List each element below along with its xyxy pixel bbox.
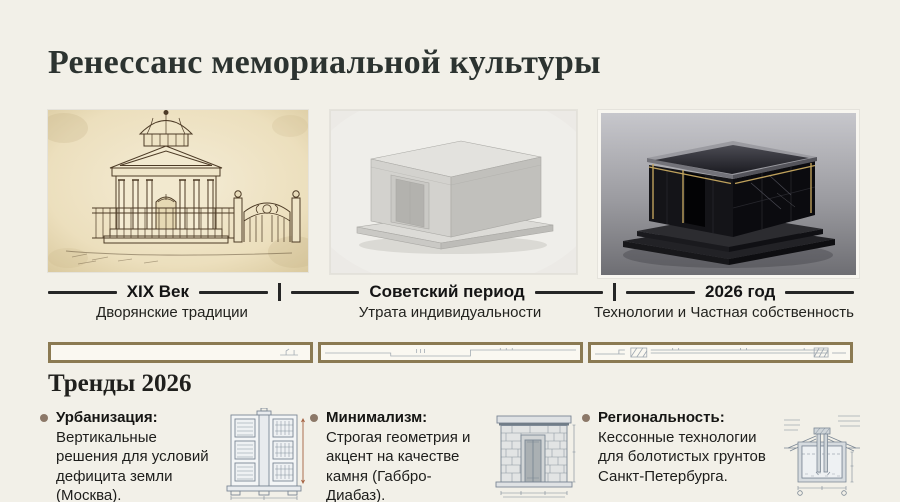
trend-label: Региональность:: [598, 409, 725, 426]
timeline: XIX Век Советский период 2026 год Дворян…: [48, 282, 854, 324]
trend-description: Вертикальные решения для условий дефицит…: [56, 429, 209, 502]
timeline-era-label-soviet: Советский период: [369, 282, 524, 302]
timeline-line-segment: [291, 291, 360, 294]
concrete-box-illustration: [331, 111, 576, 273]
bullet-icon: [40, 414, 48, 422]
trend-description: Строгая геометрия и акцент на качестве к…: [326, 429, 470, 502]
timeline-sublabels: Дворянские традиции Утрата индивидуально…: [48, 304, 854, 324]
era-image-xix-century: [48, 110, 308, 272]
timeline-line-segment: [785, 291, 854, 294]
band-segment: [48, 342, 313, 363]
timeline-era-label-xix: XIX Век: [127, 282, 189, 302]
band-segment: [588, 342, 853, 363]
timeline-line-segment: [626, 291, 695, 294]
trend-item-minimalism: Минимализм: Строгая геометрия и акцент н…: [310, 408, 578, 502]
section-drawing-lines: [591, 345, 850, 360]
timeline-tick: [613, 283, 616, 301]
columbarium-elevation-icon: [220, 408, 308, 500]
infographic-canvas: Ренессанс мемориальной культуры: [0, 0, 900, 502]
trend-text: Минимализм: Строгая геометрия и акцент н…: [326, 408, 486, 502]
trend-text: Региональность: Кессонные технологии для…: [598, 408, 782, 486]
era-image-soviet-period: [330, 110, 577, 274]
trend-label: Урбанизация:: [56, 409, 158, 426]
trend-item-regionality: Региональность: Кессонные технологии для…: [582, 408, 862, 496]
timeline-line-segment: [535, 291, 604, 294]
timeline-axis: XIX Век Советский период 2026 год: [48, 282, 854, 302]
bullet-icon: [582, 414, 590, 422]
section-drawing-lines: [321, 345, 580, 360]
section-drawing-lines: [51, 345, 310, 360]
trends-heading: Тренды 2026: [48, 370, 192, 398]
trend-description: Кессонные технологии для болотистых грун…: [598, 429, 766, 485]
caisson-section-icon: [782, 408, 862, 496]
trend-label: Минимализм:: [326, 409, 427, 426]
timeline-line-segment: [199, 291, 268, 294]
timeline-era-sublabel-soviet: Утрата индивидуальности: [359, 304, 541, 321]
trend-item-urbanization: Урбанизация: Вертикальные решения для ус…: [40, 408, 308, 502]
timeline-era-label-2026: 2026 год: [705, 282, 775, 302]
trend-text: Урбанизация: Вертикальные решения для ус…: [56, 408, 216, 502]
timeline-era-sublabel-xix: Дворянские традиции: [96, 304, 248, 321]
black-cube-mausoleum-illustration: [601, 113, 856, 275]
band-segment: [318, 342, 583, 363]
bullet-icon: [310, 414, 318, 422]
stone-facade-icon: [490, 408, 578, 500]
architectural-section-band: [48, 342, 853, 363]
timeline-era-sublabel-2026: Технологии и Частная собственность: [594, 304, 854, 321]
timeline-line-segment: [48, 291, 117, 294]
timeline-tick: [278, 283, 281, 301]
sepia-mausoleum-illustration: [48, 110, 308, 272]
era-image-2026: [598, 110, 859, 278]
page-title: Ренессанс мемориальной культуры: [48, 44, 601, 82]
